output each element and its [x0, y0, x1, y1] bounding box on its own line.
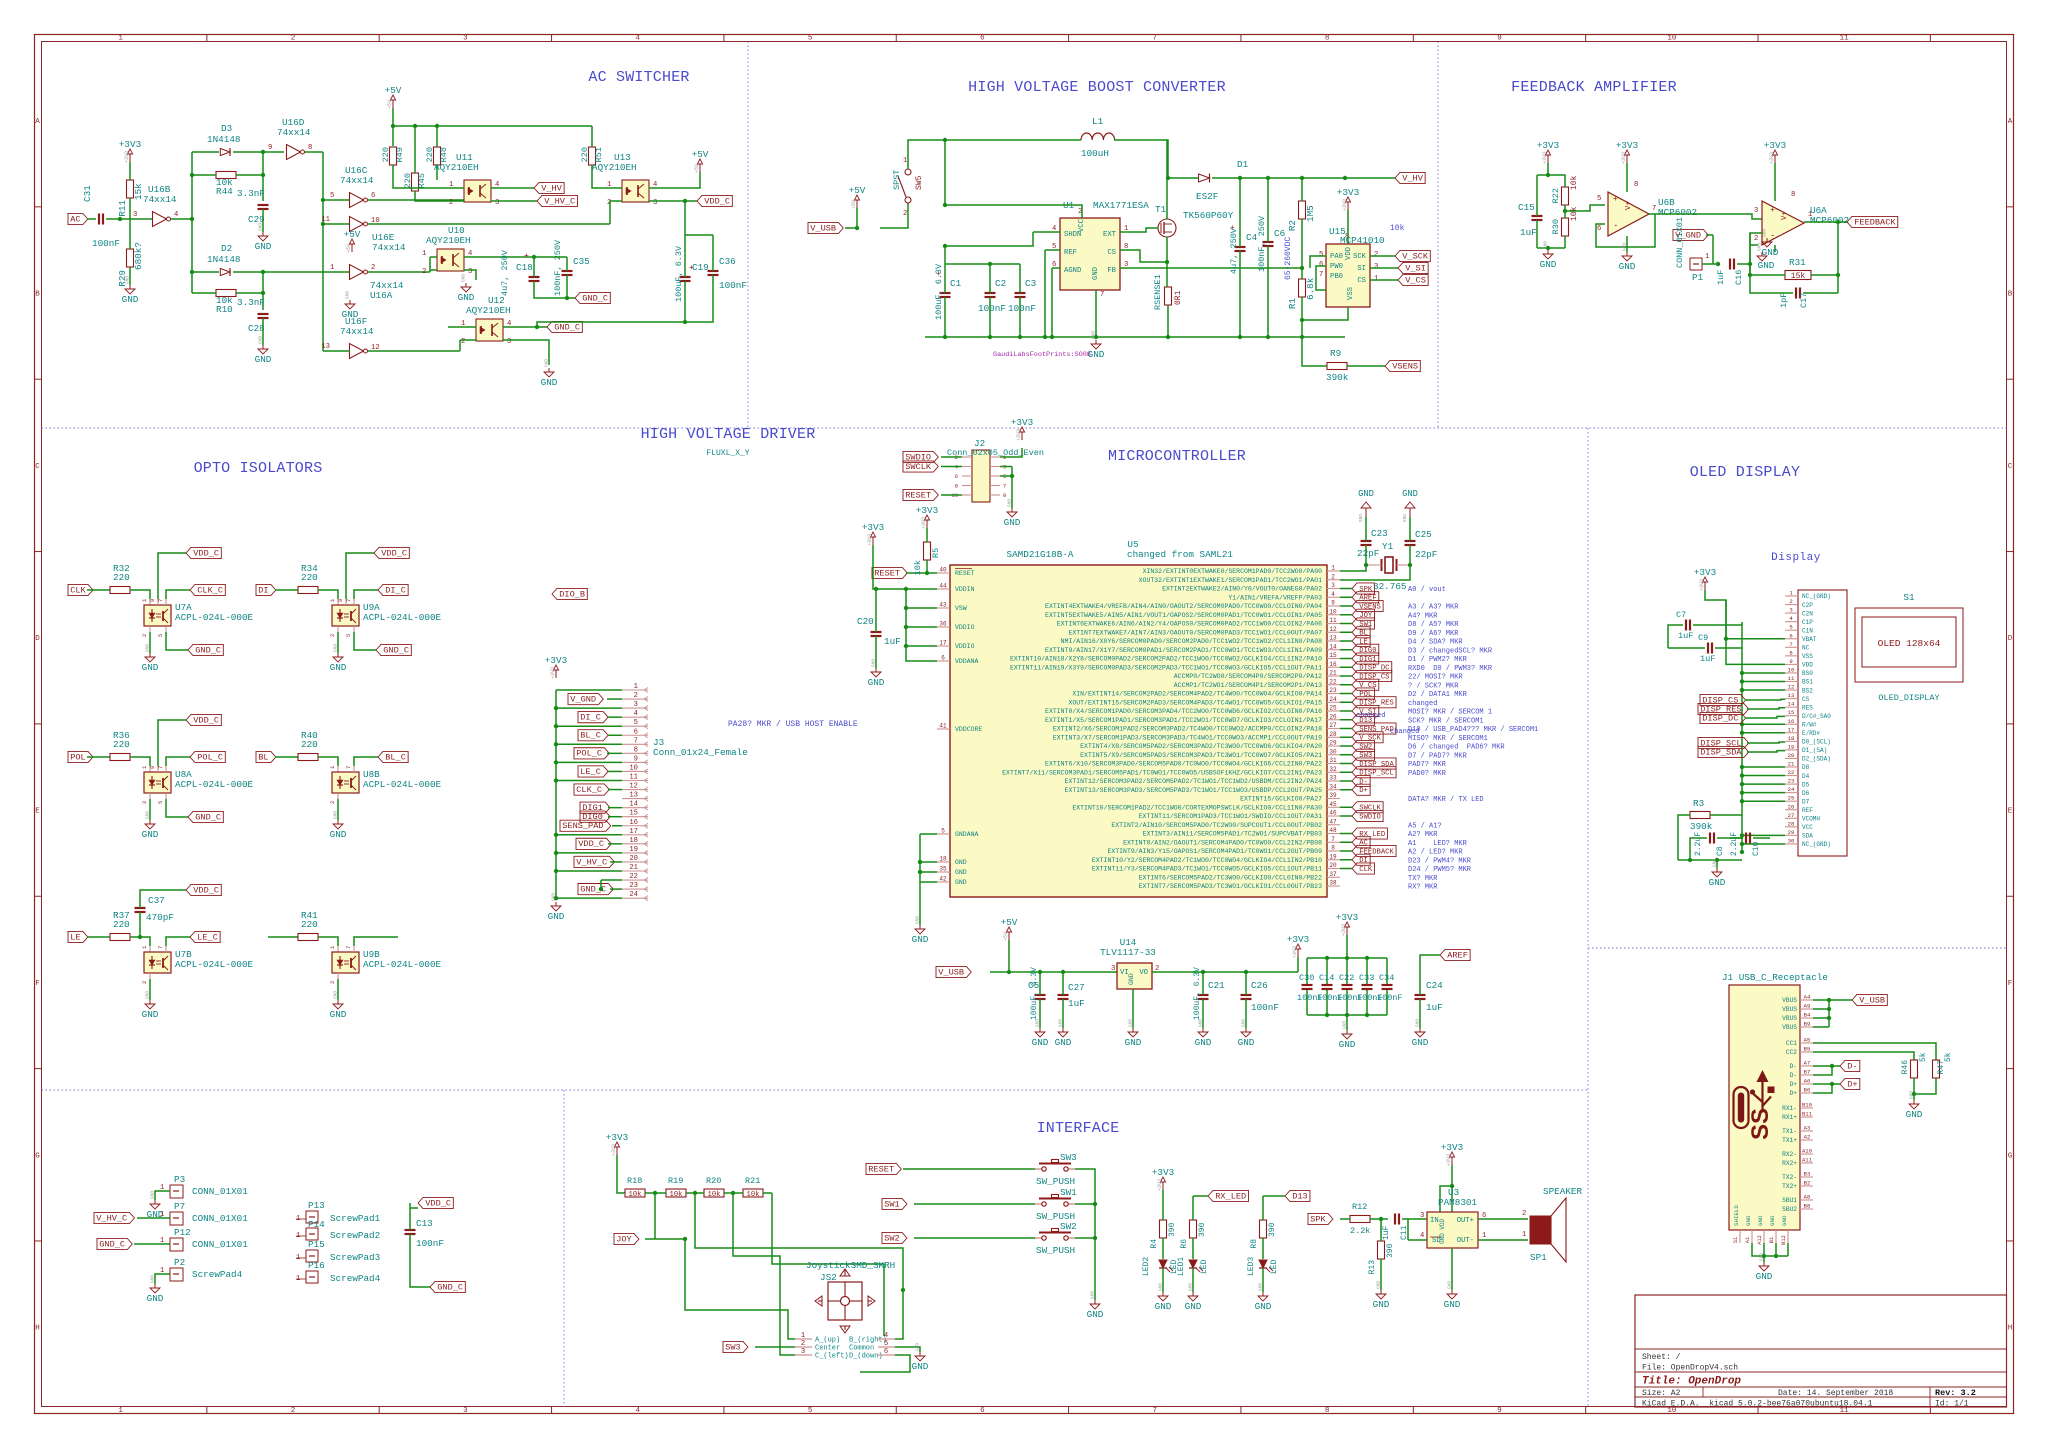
svg-text:+3V3: +3V3: [611, 1144, 617, 1156]
svg-text:SW3: SW3: [1359, 752, 1372, 760]
svg-text:V_SCK: V_SCK: [1402, 251, 1429, 261]
svg-text:24: 24: [1788, 786, 1795, 793]
svg-text:GND: GND: [1402, 489, 1418, 499]
svg-text:D6 / changed PAD6? MKR: D6 / changed PAD6? MKR: [1408, 744, 1505, 752]
svg-text:GND: GND: [145, 811, 151, 819]
svg-text:R22: R22: [1551, 188, 1561, 203]
svg-text:ScrewPad4: ScrewPad4: [330, 1273, 381, 1284]
svg-text:GND: GND: [1091, 331, 1097, 339]
svg-text:R44: R44: [216, 186, 233, 197]
svg-text:GND: GND: [1195, 1037, 1212, 1048]
svg-text:10k: 10k: [1570, 206, 1579, 221]
svg-text:20: 20: [629, 855, 638, 863]
svg-text:680k?: 680k?: [133, 242, 144, 270]
svg-text:15: 15: [629, 810, 638, 818]
svg-text:2: 2: [141, 981, 148, 984]
svg-text:GND: GND: [258, 336, 264, 344]
svg-text:V_USB: V_USB: [810, 223, 836, 233]
svg-text:VCC: VCC: [1802, 824, 1813, 831]
svg-text:22pF: 22pF: [1415, 549, 1437, 560]
svg-text:C34: C34: [1379, 973, 1394, 983]
svg-text:6: 6: [955, 473, 958, 480]
svg-text:B9: B9: [1804, 1021, 1811, 1028]
svg-text:GND: GND: [1035, 1019, 1041, 1027]
svg-text:E: E: [35, 808, 40, 816]
svg-text:GND: GND: [1055, 1037, 1072, 1048]
svg-text:10k: 10k: [1570, 175, 1579, 190]
svg-text:1: 1: [607, 181, 611, 189]
svg-text:22: 22: [1329, 678, 1337, 685]
svg-text:19: 19: [1788, 743, 1795, 750]
svg-text:3: 3: [1374, 263, 1378, 271]
svg-text:1: 1: [1522, 1231, 1526, 1239]
svg-text:220: 220: [580, 147, 590, 162]
svg-text:EXTINT5/X9/SERCOM5PAD3/SERCOM3: EXTINT5/X9/SERCOM5PAD3/SERCOM3PAD3/TC3WO…: [1080, 752, 1322, 759]
svg-text:V_HV: V_HV: [541, 183, 562, 193]
svg-text:11: 11: [629, 774, 638, 782]
svg-text:Common: Common: [849, 1345, 874, 1353]
svg-text:4: 4: [1420, 1232, 1424, 1240]
svg-text:VDD_C: VDD_C: [193, 548, 219, 558]
svg-text:GND: GND: [1412, 1037, 1429, 1048]
svg-text:PA28? MKR / USB HOST ENABLE: PA28? MKR / USB HOST ENABLE: [728, 720, 858, 729]
svg-text:+3V3: +3V3: [124, 151, 130, 163]
svg-text:ES2F: ES2F: [1196, 191, 1218, 202]
svg-text:9: 9: [634, 755, 638, 763]
svg-text:L1: L1: [1092, 116, 1104, 127]
svg-text:JoystickSMD_SKRH: JoystickSMD_SKRH: [806, 1260, 895, 1271]
svg-text:5: 5: [1597, 195, 1601, 203]
svg-text:SWCLK: SWCLK: [1359, 805, 1381, 813]
svg-text:EXTINT11/Y3/SERCOM4PAD3/TC1WO1: EXTINT11/Y3/SERCOM4PAD3/TC1WO1/TCC0WO5/G…: [1092, 866, 1322, 873]
svg-text:B5: B5: [1804, 1046, 1811, 1053]
svg-text:TX2-: TX2-: [1782, 1174, 1797, 1181]
svg-text:+3V3: +3V3: [606, 1132, 628, 1143]
svg-text:ScrewPad1: ScrewPad1: [330, 1213, 381, 1224]
svg-text:10k: 10k: [747, 1191, 760, 1199]
svg-text:GND: GND: [1781, 1215, 1788, 1226]
svg-text:6: 6: [1789, 632, 1792, 639]
svg-text:ACPL-024L-000E: ACPL-024L-000E: [175, 612, 254, 623]
svg-text:A1: A1: [1745, 1237, 1751, 1243]
svg-text:+3V3: +3V3: [1341, 924, 1347, 936]
svg-text:23: 23: [1788, 778, 1795, 785]
svg-text:EXTINT8/AIN2/OAOUT1/SERCOM4PAD: EXTINT8/AIN2/OAOUT1/SERCOM4PAD0/TC0WO0/C…: [1123, 839, 1322, 846]
svg-text:44: 44: [939, 583, 947, 590]
svg-text:changed: changed: [1356, 712, 1385, 720]
svg-text:C9: C9: [1698, 633, 1708, 643]
svg-text:23: 23: [1329, 687, 1337, 694]
svg-text:100uF, 6.3V: 100uF, 6.3V: [1030, 967, 1039, 1020]
svg-text:29: 29: [1329, 740, 1337, 747]
svg-text:7: 7: [1331, 836, 1335, 843]
svg-text:+3V3: +3V3: [867, 534, 873, 546]
svg-text:C15: C15: [1518, 202, 1535, 213]
svg-text:GND: GND: [333, 991, 339, 999]
svg-text:FB: FB: [1107, 267, 1116, 275]
svg-text:26: 26: [1788, 803, 1795, 810]
svg-text:D-: D-: [1847, 1061, 1857, 1071]
svg-text:100nF, 250V: 100nF, 250V: [1257, 215, 1267, 272]
svg-text:74xx14: 74xx14: [372, 242, 406, 253]
svg-text:100uF, 6.3V: 100uF, 6.3V: [934, 263, 944, 320]
svg-text:G: G: [2008, 1152, 2013, 1160]
svg-text:36: 36: [939, 621, 947, 628]
svg-text:V+: V+: [1625, 201, 1633, 210]
svg-text:LED3: LED3: [1247, 1257, 1256, 1276]
svg-text:DISP_CS: DISP_CS: [1359, 673, 1389, 681]
svg-text:2: 2: [141, 634, 148, 637]
svg-text:AQY210EH: AQY210EH: [426, 235, 471, 246]
svg-text:2: 2: [1754, 235, 1758, 243]
svg-text:43: 43: [939, 602, 947, 609]
svg-text:2: 2: [1374, 251, 1378, 259]
svg-text:XOUT/EXTINT15/SERCOM2PAD3/SERC: XOUT/EXTINT15/SERCOM2PAD3/SERCOM4PAD3/TC…: [1068, 699, 1322, 706]
svg-text:14: 14: [1788, 701, 1795, 708]
svg-text:1uF: 1uF: [1426, 1002, 1443, 1013]
svg-text:8: 8: [149, 766, 156, 769]
svg-text:30: 30: [1788, 837, 1795, 844]
svg-text:C4: C4: [1246, 232, 1258, 243]
svg-text:Y1: Y1: [1382, 541, 1394, 552]
svg-text:R2: R2: [1287, 220, 1298, 231]
svg-text:GND: GND: [1125, 1037, 1142, 1048]
svg-text:D10 / USB_PAD4??? MKR / SERCOM: D10 / USB_PAD4??? MKR / SERCOM1: [1408, 726, 1538, 734]
svg-text:VDDANA: VDDANA: [955, 658, 979, 665]
svg-text:OLED_DISPLAY: OLED_DISPLAY: [1878, 693, 1939, 703]
svg-text:GND: GND: [1756, 1271, 1773, 1282]
svg-text:6: 6: [980, 1407, 985, 1415]
svg-text:Date: 14. September 2018: Date: 14. September 2018: [1778, 1389, 1893, 1398]
svg-text:7: 7: [634, 737, 638, 745]
svg-text:1: 1: [801, 1332, 805, 1340]
svg-text:C3: C3: [1025, 278, 1036, 289]
svg-text:RX1+: RX1+: [1782, 1114, 1797, 1121]
svg-text:R11: R11: [117, 200, 128, 217]
svg-text:220: 220: [381, 147, 391, 162]
svg-text:DISP_DC: DISP_DC: [1359, 665, 1390, 673]
svg-text:AQY210EH: AQY210EH: [434, 162, 479, 173]
svg-text:CONN_01X01: CONN_01X01: [192, 1239, 248, 1250]
svg-text:C: C: [2008, 463, 2013, 471]
svg-text:B11: B11: [1802, 1111, 1813, 1118]
svg-text:TLV1117-33: TLV1117-33: [1100, 947, 1156, 958]
svg-text:JOY: JOY: [1359, 612, 1373, 620]
svg-text:D3: D3: [221, 123, 232, 134]
svg-text:XIN/EXTINT14/SERCOM2PAD2/SERCO: XIN/EXTINT14/SERCOM2PAD2/SERCOM4PAD2/TC4…: [1072, 691, 1322, 698]
svg-text:VDD_C: VDD_C: [193, 715, 219, 725]
svg-text:74xx14: 74xx14: [340, 175, 374, 186]
svg-text:A_(up): A_(up): [815, 1337, 840, 1345]
svg-text:7: 7: [345, 599, 352, 602]
svg-text:B10: B10: [1802, 1102, 1813, 1109]
svg-text:1uF: 1uF: [1520, 227, 1537, 238]
svg-text:? / SCK? MKR: ? / SCK? MKR: [1408, 682, 1459, 690]
svg-text:+: +: [1613, 195, 1618, 204]
svg-text:GND: GND: [1087, 1309, 1104, 1320]
svg-text:B: B: [35, 291, 40, 299]
svg-text:1: 1: [1705, 253, 1709, 261]
svg-text:7: 7: [1652, 205, 1656, 213]
svg-text:+3V3: +3V3: [1342, 199, 1348, 211]
svg-text:8: 8: [1634, 181, 1638, 189]
svg-text:+3V3: +3V3: [1616, 140, 1638, 151]
svg-text:7: 7: [345, 946, 352, 949]
svg-text:GND: GND: [1709, 877, 1726, 888]
svg-text:4: 4: [635, 1407, 640, 1415]
svg-text:U16A: U16A: [370, 290, 393, 301]
svg-text:C25: C25: [1415, 529, 1432, 540]
svg-text:TX1-: TX1-: [1782, 1128, 1797, 1135]
svg-text:8: 8: [1331, 845, 1335, 852]
svg-text:VDD_C: VDD_C: [578, 839, 604, 849]
svg-text:D13: D13: [1292, 1191, 1307, 1201]
svg-text:1: 1: [634, 683, 638, 691]
svg-text:EXTINT6/SERCOM5PAD2/TC3WO0/GCL: EXTINT6/SERCOM5PAD2/TC3WO0/GCLKIO0/CCL0I…: [1139, 874, 1322, 881]
svg-text:3: 3: [133, 211, 137, 219]
svg-text:8: 8: [955, 483, 958, 490]
svg-text:8: 8: [308, 144, 312, 152]
svg-text:GND: GND: [330, 662, 347, 673]
svg-text:3: 3: [801, 1348, 805, 1356]
svg-text:1: 1: [1482, 1232, 1486, 1240]
svg-text:2.2uF: 2.2uF: [1730, 832, 1739, 856]
svg-text:D5: D5: [1802, 781, 1810, 788]
svg-text:V_HV_C: V_HV_C: [576, 857, 607, 867]
svg-text:R19: R19: [668, 1176, 683, 1186]
svg-text:37: 37: [1329, 871, 1337, 878]
svg-text:V_SI: V_SI: [1405, 263, 1426, 273]
svg-text:GND: GND: [1358, 489, 1374, 499]
svg-text:+3V3: +3V3: [119, 139, 141, 150]
svg-text:GND: GND: [1032, 1037, 1049, 1048]
svg-text:GND: GND: [1415, 1019, 1421, 1027]
svg-text:POL: POL: [70, 752, 85, 762]
svg-text:GND: GND: [1090, 1291, 1096, 1299]
svg-text:2: 2: [329, 634, 336, 637]
svg-text:B3: B3: [1804, 1171, 1811, 1178]
svg-text:BS2: BS2: [1802, 687, 1813, 694]
svg-text:NMI/AIN16/X0Y6/SERCOM0PAD0/SER: NMI/AIN16/X0Y6/SERCOM0PAD0/SERCOM2PAD0/T…: [1061, 638, 1322, 645]
svg-text:7: 7: [1789, 641, 1792, 648]
svg-text:PAM8301: PAM8301: [1438, 1197, 1477, 1208]
svg-text:5: 5: [345, 634, 352, 637]
svg-text:GND: GND: [544, 359, 550, 367]
svg-text:A11: A11: [1802, 1157, 1813, 1164]
svg-text:VSS: VSS: [1347, 287, 1355, 300]
svg-text:CS: CS: [1357, 277, 1366, 285]
svg-text:D: D: [35, 635, 40, 643]
svg-text:SW3: SW3: [1060, 1152, 1077, 1163]
svg-text:GND: GND: [955, 859, 967, 866]
svg-text:+3V3: +3V3: [1011, 417, 1033, 428]
svg-text:D1_(SA): D1_(SA): [1802, 747, 1827, 754]
svg-text:LE_C: LE_C: [580, 767, 601, 777]
svg-text:26: 26: [1329, 713, 1337, 720]
svg-text:+5V: +5V: [385, 85, 402, 96]
svg-text:2: 2: [291, 35, 296, 43]
svg-text:D1 / PWM2? MKR: D1 / PWM2? MKR: [1408, 656, 1468, 664]
svg-text:8: 8: [634, 746, 638, 754]
svg-text:GND: GND: [955, 879, 967, 886]
svg-text:SPK: SPK: [1359, 586, 1373, 594]
svg-text:220: 220: [301, 572, 318, 583]
svg-text:10: 10: [1667, 35, 1677, 43]
svg-text:3: 3: [1754, 207, 1758, 215]
svg-text:GND: GND: [1712, 859, 1718, 867]
svg-text:B_(right): B_(right): [849, 1337, 887, 1345]
svg-text:EXTINT15/GCLKIO0/PA27: EXTINT15/GCLKIO0/PA27: [1240, 796, 1322, 803]
svg-text:BL: BL: [258, 752, 268, 762]
svg-text:C1N: C1N: [1802, 627, 1813, 634]
svg-text:11: 11: [1840, 35, 1850, 43]
svg-text:GND: GND: [333, 644, 339, 652]
svg-text:28: 28: [1788, 820, 1795, 827]
svg-text:DI: DI: [258, 585, 268, 595]
svg-text:27: 27: [1788, 812, 1795, 819]
svg-text:C17: C17: [1799, 293, 1809, 308]
svg-text:4: 4: [174, 211, 178, 219]
svg-text:D1: D1: [1237, 159, 1249, 170]
svg-text:100nF: 100nF: [1377, 993, 1403, 1003]
svg-text:+3V3: +3V3: [1292, 946, 1298, 958]
svg-text:D+: D+: [1790, 1081, 1798, 1088]
svg-text:10k: 10k: [670, 1191, 683, 1199]
svg-text:13: 13: [1788, 692, 1795, 699]
svg-text:9: 9: [1331, 600, 1335, 607]
svg-text:GND: GND: [145, 991, 151, 999]
svg-text:27: 27: [1329, 722, 1337, 729]
svg-text:D2 / DATA1 MKR: D2 / DATA1 MKR: [1408, 691, 1468, 699]
svg-text:390: 390: [1198, 1222, 1207, 1237]
svg-text:SI: SI: [1357, 265, 1366, 273]
svg-text:6: 6: [371, 192, 375, 200]
svg-text:220: 220: [113, 572, 130, 583]
svg-text:B2: B2: [1804, 1180, 1811, 1187]
svg-text:GND: GND: [1155, 1301, 1172, 1312]
svg-text:KiCad E.D.A. kicad 5.0.2-bee7: KiCad E.D.A. kicad 5.0.2-bee76a070ubuntu…: [1642, 1400, 1873, 1409]
svg-text:100nF: 100nF: [1008, 303, 1036, 314]
svg-text:XOUT32/EXTINT1EXTWAKE1/SERCOM1: XOUT32/EXTINT1EXTWAKE1/SERCOM1PAD1/TCC2W…: [1139, 577, 1322, 584]
svg-text:100nF, 250V: 100nF, 250V: [553, 239, 563, 296]
svg-text:AQY210EH: AQY210EH: [592, 162, 637, 173]
svg-text:EXTINT3/X7/SERCOM1PAD3/SERCOM3: EXTINT3/X7/SERCOM1PAD3/SERCOM3PAD3/TC4WO…: [1053, 734, 1322, 741]
svg-text:GND: GND: [147, 1293, 164, 1304]
svg-text:GND: GND: [1759, 1253, 1765, 1261]
svg-text:10k: 10k: [708, 1191, 721, 1199]
svg-text:OLED 128x64: OLED 128x64: [1878, 638, 1941, 649]
svg-text:D: D: [2008, 635, 2013, 643]
svg-text:10: 10: [629, 764, 638, 772]
svg-text:A12: A12: [1757, 1235, 1763, 1245]
svg-text:CLK: CLK: [70, 585, 86, 595]
svg-text:EXTINT7/SERCOM5PAD3/TC3WO1/GCL: EXTINT7/SERCOM5PAD3/TC3WO1/GCLKIO1/CCL0O…: [1139, 883, 1322, 890]
svg-text:A1 LED? MKR: A1 LED? MKR: [1408, 840, 1468, 848]
svg-text:R4: R4: [1150, 1239, 1159, 1249]
svg-text:R45: R45: [417, 173, 427, 188]
svg-text:SW1: SW1: [884, 1199, 899, 1209]
svg-text:GND: GND: [915, 1343, 921, 1351]
svg-text:C2: C2: [995, 278, 1006, 289]
svg-text:D4 / SDA? MKR: D4 / SDA? MKR: [1408, 639, 1463, 647]
svg-text:C10: C10: [1752, 841, 1761, 856]
svg-text:7: 7: [1100, 291, 1104, 299]
svg-text:C2N: C2N: [1802, 610, 1813, 617]
svg-text:GND: GND: [125, 276, 131, 284]
svg-text:13: 13: [629, 792, 638, 800]
svg-text:+3V3: +3V3: [1287, 934, 1309, 945]
svg-text:6.8k: 6.8k: [1305, 277, 1316, 300]
svg-text:D2: D2: [221, 243, 232, 254]
svg-text:SP1: SP1: [1530, 1252, 1547, 1263]
svg-text:S1: S1: [1733, 1237, 1739, 1243]
svg-text:ACCMP1/TC2WO1/SERCOM4P1/SERCOM: ACCMP1/TC2WO1/SERCOM4P1/SERCOM2P1/PA13: [1174, 682, 1322, 689]
svg-text:C31: C31: [82, 185, 93, 202]
svg-text:3: 3: [463, 35, 468, 43]
svg-text:+3V3: +3V3: [1542, 152, 1548, 164]
svg-text:220: 220: [301, 739, 318, 750]
svg-text:21: 21: [1788, 761, 1795, 768]
svg-text:GND_C: GND_C: [554, 322, 580, 332]
svg-text:ACPL-024L-000E: ACPL-024L-000E: [363, 959, 442, 970]
svg-text:changed: changed: [1390, 728, 1419, 736]
svg-text:5: 5: [941, 828, 945, 835]
svg-text:30: 30: [1329, 748, 1337, 755]
svg-text:POL_C: POL_C: [197, 752, 223, 762]
svg-text:+3V3: +3V3: [550, 667, 556, 679]
svg-text:GND: GND: [330, 1009, 347, 1020]
svg-text:GND: GND: [150, 1191, 156, 1199]
svg-text:R21: R21: [745, 1176, 760, 1186]
svg-text:GND: GND: [1241, 1019, 1247, 1027]
svg-text:100nF: 100nF: [719, 280, 747, 291]
svg-text:D+: D+: [1359, 787, 1368, 795]
svg-text:4u7, 250V: 4u7, 250V: [1229, 227, 1239, 274]
svg-text:D23 / PWM4? MKR: D23 / PWM4? MKR: [1408, 857, 1472, 865]
svg-text:GND: GND: [1745, 1215, 1752, 1226]
svg-text:D+: D+: [1847, 1079, 1857, 1089]
svg-text:+5V: +5V: [851, 200, 857, 209]
svg-text:EXTINT13/SERCOM3PAD3/SERCOM5PA: EXTINT13/SERCOM3PAD3/SERCOM5PAD3/TC1WO1/…: [1065, 787, 1323, 794]
svg-text:XIN32/EXTINT0EXTWAKE0/SERCOM1P: XIN32/EXTINT0EXTWAKE0/SERCOM1PAD0/TCC2WO…: [1143, 568, 1323, 575]
svg-text:NC: NC: [1802, 645, 1810, 652]
svg-text:GND: GND: [541, 377, 558, 388]
svg-text:GND: GND: [1188, 1283, 1194, 1291]
svg-text:R20: R20: [706, 1176, 721, 1186]
svg-text:SHIELD: SHIELD: [1733, 1205, 1740, 1226]
svg-text:5: 5: [884, 1340, 888, 1348]
svg-text:VSS: VSS: [1802, 653, 1813, 660]
svg-text:2: 2: [291, 1407, 296, 1415]
svg-text:SW2: SW2: [884, 1233, 899, 1243]
svg-text:RX? MKR: RX? MKR: [1408, 884, 1438, 892]
svg-text:A10: A10: [1802, 1148, 1813, 1155]
svg-text:GND: GND: [1058, 1019, 1064, 1027]
svg-text:2.2uF: 2.2uF: [1694, 832, 1703, 856]
svg-text:390: 390: [1268, 1222, 1277, 1237]
svg-text:EXTINT11/AIN19/X3Y9/SERCOM0PAD: EXTINT11/AIN19/X3Y9/SERCOM0PAD3/SERCOM2P…: [1010, 664, 1322, 671]
svg-text:3: 3: [1111, 965, 1115, 973]
svg-text:3: 3: [468, 268, 472, 276]
svg-text:D8 / A5? MKR: D8 / A5? MKR: [1408, 621, 1459, 629]
svg-text:AGND: AGND: [1064, 267, 1081, 275]
svg-text:GND: GND: [1004, 517, 1021, 528]
svg-text:FEEDBACK: FEEDBACK: [1359, 848, 1394, 856]
svg-text:5: 5: [808, 35, 813, 43]
svg-text:28: 28: [1329, 731, 1337, 738]
svg-text:3: 3: [463, 1407, 468, 1415]
svg-text:DI: DI: [1359, 857, 1368, 865]
